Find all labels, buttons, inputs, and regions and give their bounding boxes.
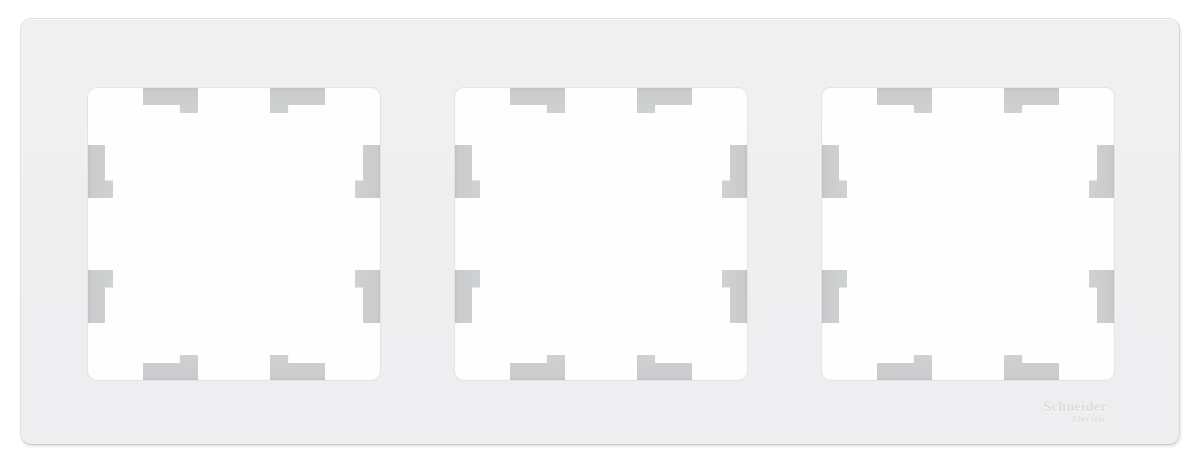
- mounting-tab-right-upper: [1089, 145, 1114, 198]
- mounting-tab-bottom-left: [143, 355, 198, 380]
- mounting-tab-bottom-right: [270, 355, 325, 380]
- mounting-tab-left-upper: [88, 145, 113, 198]
- mounting-tab-top-right: [270, 88, 325, 113]
- mounting-tab-bottom-right: [1004, 355, 1059, 380]
- mounting-tab-right-lower: [355, 270, 380, 323]
- mounting-tab-left-lower: [455, 270, 480, 323]
- mounting-tab-bottom-right: [637, 355, 692, 380]
- mounting-tab-top-left: [510, 88, 565, 113]
- product-photo: Schneider Electric: [0, 0, 1200, 467]
- mounting-tab-right-lower: [722, 270, 747, 323]
- brand-logo: Schneider Electric: [1044, 401, 1108, 424]
- mounting-tab-left-upper: [822, 145, 847, 198]
- module-opening-1: [88, 88, 380, 380]
- frame-plate: Schneider Electric: [20, 18, 1180, 445]
- module-opening-2: [455, 88, 747, 380]
- mounting-tab-left-lower: [822, 270, 847, 323]
- module-opening-3: [822, 88, 1114, 380]
- mounting-tab-bottom-left: [877, 355, 932, 380]
- mounting-tab-left-lower: [88, 270, 113, 323]
- mounting-tab-top-left: [143, 88, 198, 113]
- mounting-tab-top-right: [1004, 88, 1059, 113]
- brand-logo-name: Schneider: [1044, 401, 1108, 415]
- mounting-tab-top-left: [877, 88, 932, 113]
- mounting-tab-right-upper: [355, 145, 380, 198]
- mounting-tab-bottom-left: [510, 355, 565, 380]
- mounting-tab-left-upper: [455, 145, 480, 198]
- mounting-tab-right-upper: [722, 145, 747, 198]
- brand-logo-subname: Electric: [1044, 416, 1108, 424]
- mounting-tab-right-lower: [1089, 270, 1114, 323]
- mounting-tab-top-right: [637, 88, 692, 113]
